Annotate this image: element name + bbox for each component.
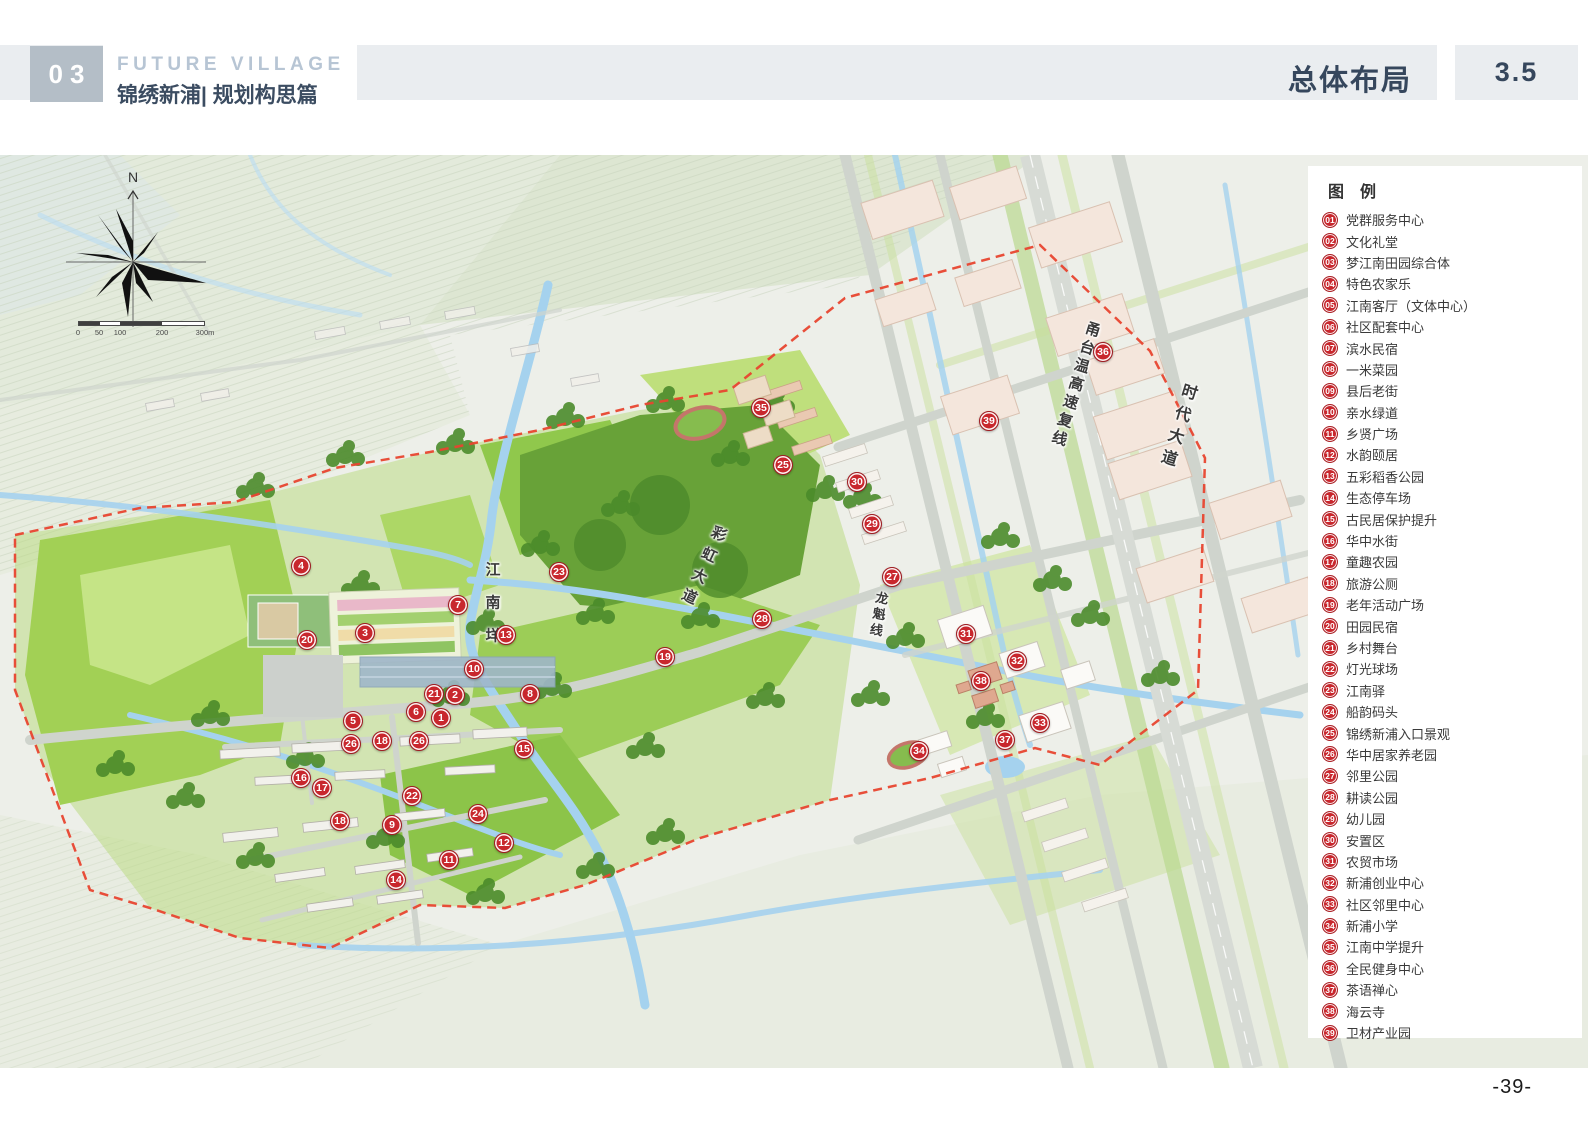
legend-item-label: 卫材产业园 — [1346, 1023, 1411, 1042]
legend-item-label: 生态停车场 — [1346, 488, 1411, 507]
map-marker: 23 — [549, 562, 569, 582]
map-marker: 9 — [382, 815, 402, 835]
legend-item-label: 水韵颐居 — [1346, 445, 1398, 464]
legend-item: 11 乡贤广场 — [1322, 423, 1582, 444]
legend-item: 37 茶语禅心 — [1322, 979, 1582, 1000]
map-marker: 30 — [847, 472, 867, 492]
legend-item: 14 生态停车场 — [1322, 487, 1582, 508]
legend-item-label: 文化礼堂 — [1346, 232, 1398, 251]
legend-item-label: 安置区 — [1346, 831, 1385, 850]
legend-item: 08 一米菜园 — [1322, 359, 1582, 380]
legend-item-label: 古民居保护提升 — [1346, 510, 1437, 529]
legend-item-number: 27 — [1322, 768, 1338, 784]
legend-item: 24 船韵码头 — [1322, 701, 1582, 722]
legend-item-number: 28 — [1322, 789, 1338, 805]
map-marker: 15 — [514, 739, 534, 759]
legend-item: 19 老年活动广场 — [1322, 594, 1582, 615]
legend-item-number: 08 — [1322, 361, 1338, 377]
legend-item-number: 35 — [1322, 939, 1338, 955]
legend-item: 20 田园民宿 — [1322, 615, 1582, 636]
legend-item-number: 37 — [1322, 982, 1338, 998]
legend-item: 25 锦绣新浦入口景观 — [1322, 722, 1582, 743]
legend-item-label: 新浦创业中心 — [1346, 873, 1424, 892]
legend-item-label: 幼儿园 — [1346, 809, 1385, 828]
legend-item-label: 海云寺 — [1346, 1002, 1385, 1021]
legend-item-label: 县后老街 — [1346, 381, 1398, 400]
legend-item: 34 新浦小学 — [1322, 915, 1582, 936]
master-plan-map: N — [0, 155, 1588, 1068]
legend-item-number: 31 — [1322, 853, 1338, 869]
legend-item: 13 五彩稻香公园 — [1322, 466, 1582, 487]
legend-item: 23 江南驿 — [1322, 680, 1582, 701]
map-marker: 4 — [291, 556, 311, 576]
legend-item-number: 04 — [1322, 276, 1338, 292]
legend-item-number: 09 — [1322, 383, 1338, 399]
legend-item: 07 滨水民宿 — [1322, 337, 1582, 358]
legend-item-number: 38 — [1322, 1003, 1338, 1019]
map-marker: 8 — [520, 684, 540, 704]
map-marker: 31 — [956, 624, 976, 644]
page-number: -39- — [1492, 1076, 1532, 1099]
legend-item-label: 全民健身中心 — [1346, 959, 1424, 978]
map-marker: 18 — [330, 811, 350, 831]
map-marker: 3 — [355, 623, 375, 643]
map-marker: 19 — [655, 647, 675, 667]
legend-item-label: 锦绣新浦入口景观 — [1346, 724, 1450, 743]
legend-item: 35 江南中学提升 — [1322, 936, 1582, 957]
map-marker: 25 — [773, 455, 793, 475]
map-marker: 32 — [1007, 651, 1027, 671]
legend-item-number: 19 — [1322, 597, 1338, 613]
title-cn: 锦绣新浦| 规划构思篇 — [117, 79, 357, 109]
legend-item-number: 15 — [1322, 511, 1338, 527]
chapter-number: 03 — [42, 59, 92, 90]
legend-item-label: 华中居家养老园 — [1346, 745, 1437, 764]
legend-item: 27 邻里公园 — [1322, 765, 1582, 786]
legend-item-label: 田园民宿 — [1346, 617, 1398, 636]
map-marker: 2 — [445, 685, 465, 705]
legend-item-label: 滨水民宿 — [1346, 339, 1398, 358]
legend-item-label: 梦江南田园综合体 — [1346, 253, 1450, 272]
legend-item-number: 12 — [1322, 447, 1338, 463]
legend-item-label: 一米菜园 — [1346, 360, 1398, 379]
legend-item-label: 江南客厅（文体中心） — [1346, 296, 1476, 315]
map-marker: 29 — [862, 514, 882, 534]
legend-item-label: 农贸市场 — [1346, 852, 1398, 871]
map-marker: 28 — [752, 609, 772, 629]
map-marker: 24 — [468, 804, 488, 824]
legend-item-label: 乡村舞台 — [1346, 638, 1398, 657]
legend-item: 05 江南客厅（文体中心） — [1322, 295, 1582, 316]
legend-item: 26 华中居家养老园 — [1322, 744, 1582, 765]
legend-item-number: 34 — [1322, 918, 1338, 934]
legend-item-number: 07 — [1322, 340, 1338, 356]
legend-item: 22 灯光球场 — [1322, 658, 1582, 679]
legend-item-number: 01 — [1322, 212, 1338, 228]
legend-items: 01 党群服务中心 02 文化礼堂 03 梦江南田园综合体 04 特色农家乐 0… — [1322, 209, 1582, 1043]
legend-item: 39 卫材产业园 — [1322, 1022, 1582, 1043]
map-marker: 5 — [343, 711, 363, 731]
legend-item-label: 江南驿 — [1346, 681, 1385, 700]
map-marker: 39 — [979, 411, 999, 431]
legend-item-label: 华中水街 — [1346, 531, 1398, 550]
legend-item-number: 05 — [1322, 297, 1338, 313]
legend-item-number: 10 — [1322, 404, 1338, 420]
map-marker: 37 — [995, 730, 1015, 750]
legend-item: 36 全民健身中心 — [1322, 958, 1582, 979]
legend-item-number: 13 — [1322, 468, 1338, 484]
legend-item-number: 32 — [1322, 875, 1338, 891]
legend-item: 31 农贸市场 — [1322, 851, 1582, 872]
legend-item-number: 11 — [1322, 426, 1338, 442]
map-marker: 16 — [291, 768, 311, 788]
legend-item-label: 新浦小学 — [1346, 916, 1398, 935]
title-card: FUTURE VILLAGE 锦绣新浦| 规划构思篇 — [103, 40, 357, 118]
legend-item-number: 20 — [1322, 618, 1338, 634]
legend-item-label: 耕读公园 — [1346, 788, 1398, 807]
legend-item-label: 党群服务中心 — [1346, 210, 1424, 229]
legend-item: 06 社区配套中心 — [1322, 316, 1582, 337]
map-marker: 34 — [909, 741, 929, 761]
legend-item-number: 39 — [1322, 1025, 1338, 1041]
legend-item: 17 童趣农园 — [1322, 551, 1582, 572]
legend-item-number: 33 — [1322, 896, 1338, 912]
legend-item-number: 14 — [1322, 490, 1338, 506]
legend-item-number: 36 — [1322, 960, 1338, 976]
map-marker: 26 — [341, 734, 361, 754]
legend-item-label: 亲水绿道 — [1346, 403, 1398, 422]
legend-panel: 图 例 01 党群服务中心 02 文化礼堂 03 梦江南田园综合体 04 特色农… — [1308, 166, 1582, 1038]
map-marker: 27 — [882, 567, 902, 587]
map-marker: 10 — [464, 659, 484, 679]
section-title: 总体布局 — [1288, 57, 1412, 99]
legend-item: 01 党群服务中心 — [1322, 209, 1582, 230]
legend-item: 30 安置区 — [1322, 829, 1582, 850]
section-number-box: 3.5 — [1455, 45, 1578, 100]
map-marker: 11 — [439, 850, 459, 870]
legend-item: 10 亲水绿道 — [1322, 402, 1582, 423]
map-marker: 22 — [402, 786, 422, 806]
map-marker: 26 — [409, 731, 429, 751]
legend-item-label: 旅游公厕 — [1346, 574, 1398, 593]
map-marker: 12 — [494, 833, 514, 853]
legend-item-number: 25 — [1322, 725, 1338, 741]
map-marker: 33 — [1030, 713, 1050, 733]
legend-item-label: 社区配套中心 — [1346, 317, 1424, 336]
legend-item: 21 乡村舞台 — [1322, 637, 1582, 658]
legend-item-number: 30 — [1322, 832, 1338, 848]
chapter-number-box: 03 — [30, 46, 103, 102]
legend-item: 04 特色农家乐 — [1322, 273, 1582, 294]
legend-item: 09 县后老街 — [1322, 380, 1582, 401]
legend-item-label: 船韵码头 — [1346, 702, 1398, 721]
legend-item: 28 耕读公园 — [1322, 787, 1582, 808]
map-marker: 6 — [406, 702, 426, 722]
legend-item-number: 21 — [1322, 640, 1338, 656]
map-marker: 20 — [297, 630, 317, 650]
legend-item-number: 23 — [1322, 682, 1338, 698]
legend-item: 03 梦江南田园综合体 — [1322, 252, 1582, 273]
legend-item: 02 文化礼堂 — [1322, 230, 1582, 251]
legend-item: 16 华中水街 — [1322, 530, 1582, 551]
title-en: FUTURE VILLAGE — [117, 54, 357, 76]
map-marker: 13 — [496, 625, 516, 645]
map-marker: 36 — [1093, 342, 1113, 362]
map-marker: 7 — [448, 595, 468, 615]
section-number: 3.5 — [1495, 57, 1539, 88]
legend-title: 图 例 — [1328, 178, 1582, 202]
map-marker: 14 — [386, 870, 406, 890]
legend-item-number: 02 — [1322, 233, 1338, 249]
legend-item: 38 海云寺 — [1322, 1000, 1582, 1021]
legend-item-label: 社区邻里中心 — [1346, 895, 1424, 914]
legend-item: 15 古民居保护提升 — [1322, 508, 1582, 529]
map-marker: 17 — [312, 778, 332, 798]
legend-item-number: 26 — [1322, 746, 1338, 762]
map-marker: 38 — [971, 671, 991, 691]
legend-item-label: 老年活动广场 — [1346, 595, 1424, 614]
legend-item-label: 五彩稻香公园 — [1346, 467, 1424, 486]
map-marker: 21 — [424, 684, 444, 704]
legend-item-number: 03 — [1322, 254, 1338, 270]
legend-item-number: 16 — [1322, 533, 1338, 549]
legend-item-label: 灯光球场 — [1346, 659, 1398, 678]
legend-item-number: 06 — [1322, 319, 1338, 335]
legend-item-label: 特色农家乐 — [1346, 274, 1411, 293]
legend-item-label: 邻里公园 — [1346, 766, 1398, 785]
legend-item: 18 旅游公厕 — [1322, 573, 1582, 594]
map-marker: 35 — [751, 398, 771, 418]
legend-item-number: 24 — [1322, 704, 1338, 720]
legend-item: 33 社区邻里中心 — [1322, 894, 1582, 915]
legend-item-label: 童趣农园 — [1346, 552, 1398, 571]
legend-item-label: 江南中学提升 — [1346, 937, 1424, 956]
legend-item-label: 茶语禅心 — [1346, 980, 1398, 999]
legend-item-number: 22 — [1322, 661, 1338, 677]
legend-item-number: 17 — [1322, 554, 1338, 570]
legend-item-number: 18 — [1322, 575, 1338, 591]
legend-item: 32 新浦创业中心 — [1322, 872, 1582, 893]
legend-item-label: 乡贤广场 — [1346, 424, 1398, 443]
page: 03 FUTURE VILLAGE 锦绣新浦| 规划构思篇 总体布局 3.5 — [0, 0, 1588, 1123]
legend-item-number: 29 — [1322, 811, 1338, 827]
map-marker: 1 — [431, 708, 451, 728]
legend-item: 12 水韵颐居 — [1322, 444, 1582, 465]
map-marker: 18 — [372, 731, 392, 751]
legend-item: 29 幼儿园 — [1322, 808, 1582, 829]
